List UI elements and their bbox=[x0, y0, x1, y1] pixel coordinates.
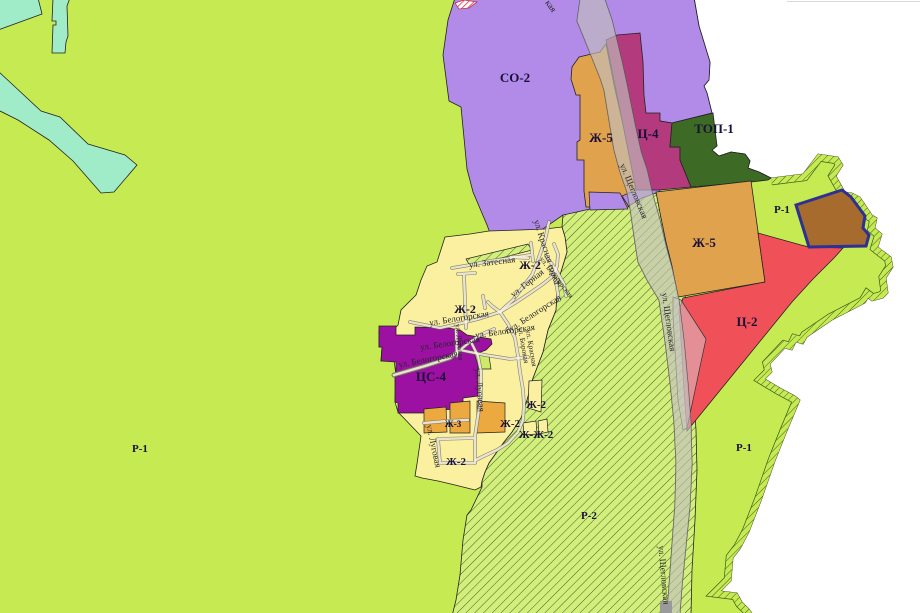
svg-text:ЦС-4: ЦС-4 bbox=[416, 369, 447, 384]
svg-text:Ж-5: Ж-5 bbox=[589, 130, 613, 145]
svg-text:Ж-3: Ж-3 bbox=[445, 419, 462, 429]
svg-text:Р-1: Р-1 bbox=[132, 443, 148, 455]
svg-text:Ж-2: Ж-2 bbox=[446, 456, 467, 468]
svg-text:Ц-4: Ц-4 bbox=[638, 126, 659, 141]
svg-text:Ж-2: Ж-2 bbox=[500, 418, 521, 430]
svg-text:Р-1: Р-1 bbox=[736, 442, 752, 454]
svg-text:Р-1: Р-1 bbox=[774, 204, 790, 216]
svg-text:Р-2: Р-2 bbox=[581, 510, 597, 522]
svg-text:Ж-5: Ж-5 bbox=[692, 235, 716, 250]
svg-text:ТОП-1: ТОП-1 bbox=[694, 121, 734, 136]
svg-text:Ц-2: Ц-2 bbox=[737, 314, 758, 329]
svg-text:Ж-Ж-2: Ж-Ж-2 bbox=[519, 429, 554, 441]
svg-text:Ж-2: Ж-2 bbox=[526, 399, 547, 411]
svg-text:СО-2: СО-2 bbox=[500, 70, 530, 85]
